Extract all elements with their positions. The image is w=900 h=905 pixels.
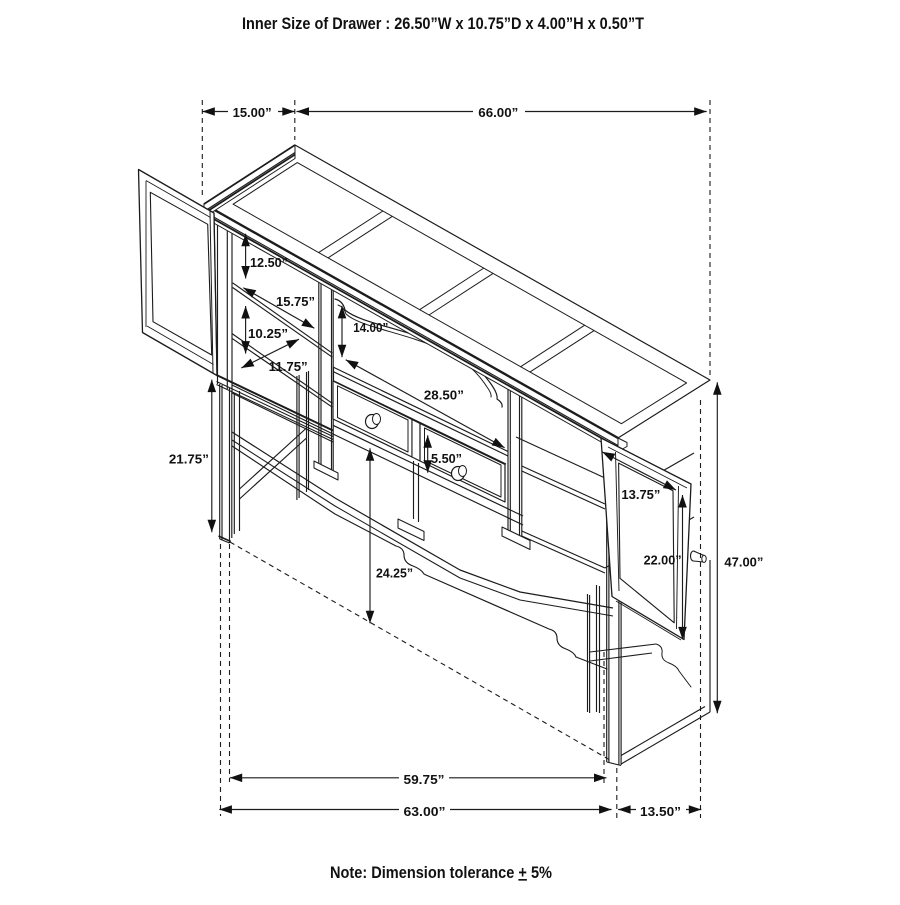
svg-text:5.50”: 5.50” xyxy=(431,451,462,466)
svg-text:14.00”: 14.00” xyxy=(353,320,388,335)
svg-text:63.00”: 63.00” xyxy=(404,804,446,819)
svg-text:Note: Dimension tolerance + 5%: Note: Dimension tolerance + 5% xyxy=(330,864,552,882)
svg-text:10.25”: 10.25” xyxy=(248,326,288,341)
svg-text:12.50”: 12.50” xyxy=(250,255,288,270)
svg-text:15.75”: 15.75” xyxy=(276,294,315,309)
svg-text:11.75”: 11.75” xyxy=(269,359,308,374)
svg-text:59.75”: 59.75” xyxy=(404,772,445,787)
svg-text:22.00”: 22.00” xyxy=(644,553,682,568)
svg-text:15.00”: 15.00” xyxy=(233,105,272,120)
svg-text:28.50”: 28.50” xyxy=(424,388,464,403)
svg-text:21.75”: 21.75” xyxy=(169,452,209,467)
svg-text:24.25”: 24.25” xyxy=(376,566,413,581)
svg-text:13.75”: 13.75” xyxy=(621,487,660,502)
svg-text:Inner Size of Drawer : 26.50”W: Inner Size of Drawer : 26.50”W x 10.75”D… xyxy=(242,15,644,33)
svg-text:13.50”: 13.50” xyxy=(640,804,681,819)
svg-text:47.00”: 47.00” xyxy=(724,555,763,570)
svg-text:66.00”: 66.00” xyxy=(478,105,518,120)
